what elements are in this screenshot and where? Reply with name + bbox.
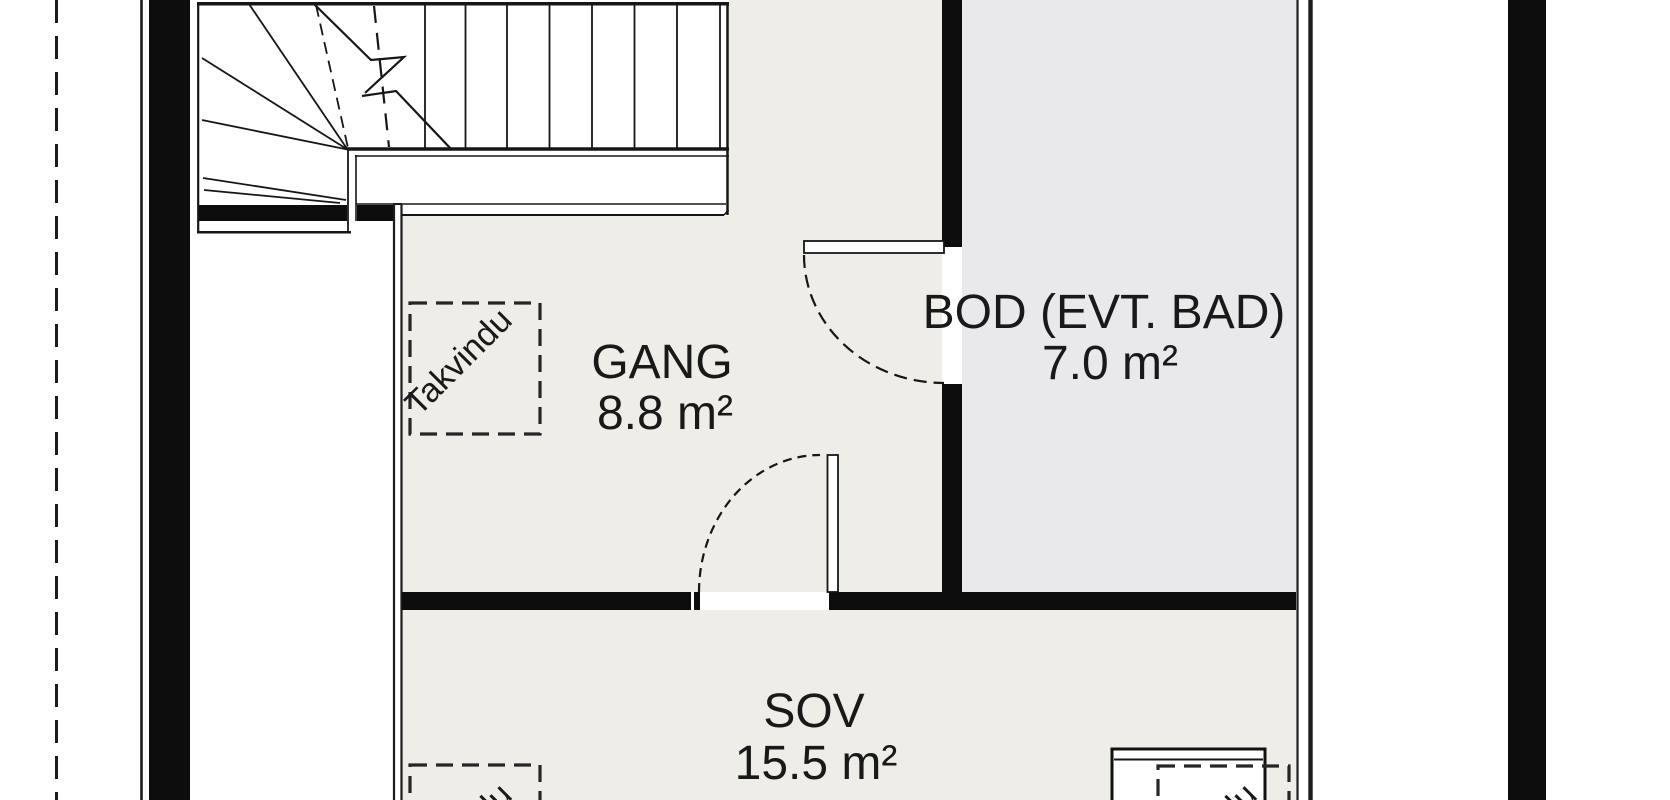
svg-text:8.8 m²: 8.8 m² — [597, 387, 733, 440]
svg-text:GANG: GANG — [591, 336, 732, 389]
svg-text:15.5 m²: 15.5 m² — [735, 737, 898, 790]
svg-text:7.0 m²: 7.0 m² — [1042, 337, 1178, 390]
svg-text:SOV: SOV — [763, 685, 864, 738]
svg-text:BOD (EVT. BAD): BOD (EVT. BAD) — [923, 286, 1286, 339]
